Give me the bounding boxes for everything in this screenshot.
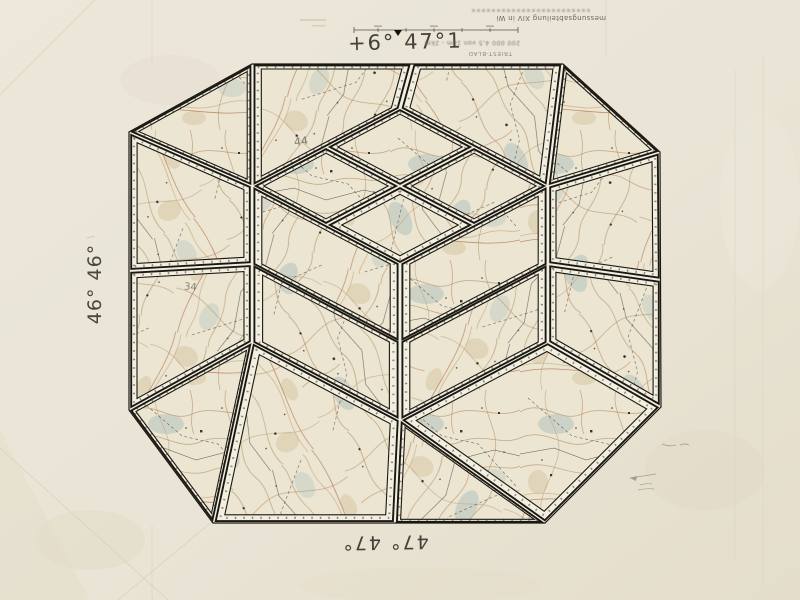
sheet-name-label: TRIEST-BLAD	[445, 50, 535, 56]
scale-bar-marker	[394, 30, 402, 36]
scale-bar	[350, 24, 520, 38]
annotation-left-coordinates: 46° 46°	[84, 234, 106, 334]
pencil-number-left: 34	[184, 282, 197, 294]
annotation-bottom-coordinates: 47° 47°	[330, 530, 440, 554]
collage-pieces-layer	[131, 65, 659, 521]
caption-scale-line: 200 000 4,5 von 1cm - 2km	[350, 39, 520, 46]
caption-illegible-line	[470, 9, 590, 12]
map-collage-graphic	[0, 0, 800, 600]
pencil-number-top: 44	[293, 134, 309, 149]
caption-department-line: messungsabteilung XIV in Wi	[350, 14, 606, 22]
scanned-map-photograph: +6° 47°1 46° 46° 47° 47° 44 34 200 000 4…	[0, 0, 800, 600]
